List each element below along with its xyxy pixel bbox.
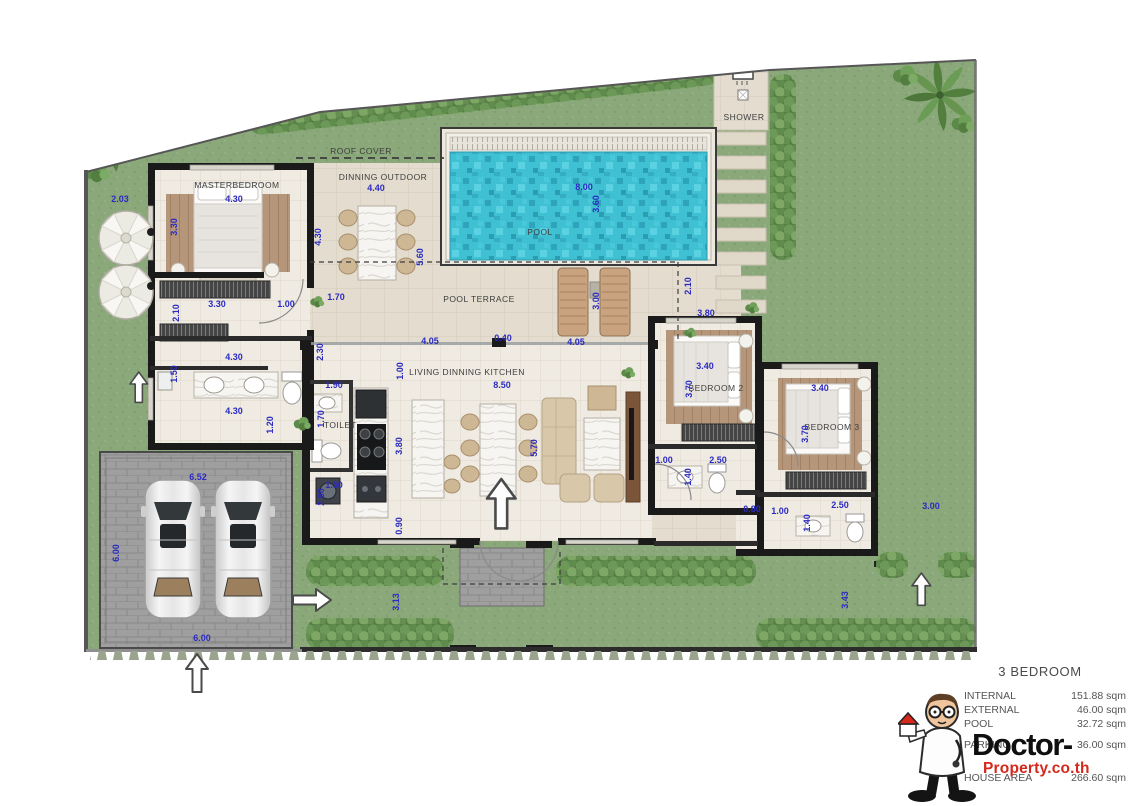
floor-plan-page: MASTERBEDROOMROOF COVERDINNING OUTDOORSH…	[0, 0, 1140, 806]
legend-row-value: 32.72 sqm	[1077, 717, 1126, 731]
kitchen-counter	[354, 388, 388, 518]
car-1	[141, 480, 205, 618]
bedroom2-bed	[666, 330, 753, 424]
fence-hatch	[90, 651, 977, 660]
legend-row-value: 151.88 sqm	[1071, 689, 1126, 703]
wardrobe	[786, 472, 866, 489]
doctor-mascot	[898, 684, 982, 804]
master-bed	[166, 183, 290, 287]
bedroom3-bed	[778, 377, 871, 470]
plan-title: 3 BEDROOM	[948, 664, 1132, 679]
mascot-coat	[920, 728, 964, 776]
brand-wordmark-bottom: Property.co.th	[983, 761, 1090, 777]
legend-row-value: 46.00 sqm	[1077, 703, 1126, 717]
legend-row-value: 36.00 sqm	[1077, 738, 1126, 752]
pool-spillway	[450, 137, 707, 150]
pool-water	[450, 152, 707, 260]
house-icon	[898, 713, 918, 736]
dining-table-outdoor	[339, 206, 415, 280]
brand-wordmark-top: Doctor-	[972, 729, 1072, 760]
wardrobe	[682, 424, 756, 441]
guest-toilet-fixtures	[312, 394, 342, 504]
car-2	[211, 480, 275, 618]
pool	[441, 128, 716, 265]
wardrobe	[160, 281, 270, 298]
